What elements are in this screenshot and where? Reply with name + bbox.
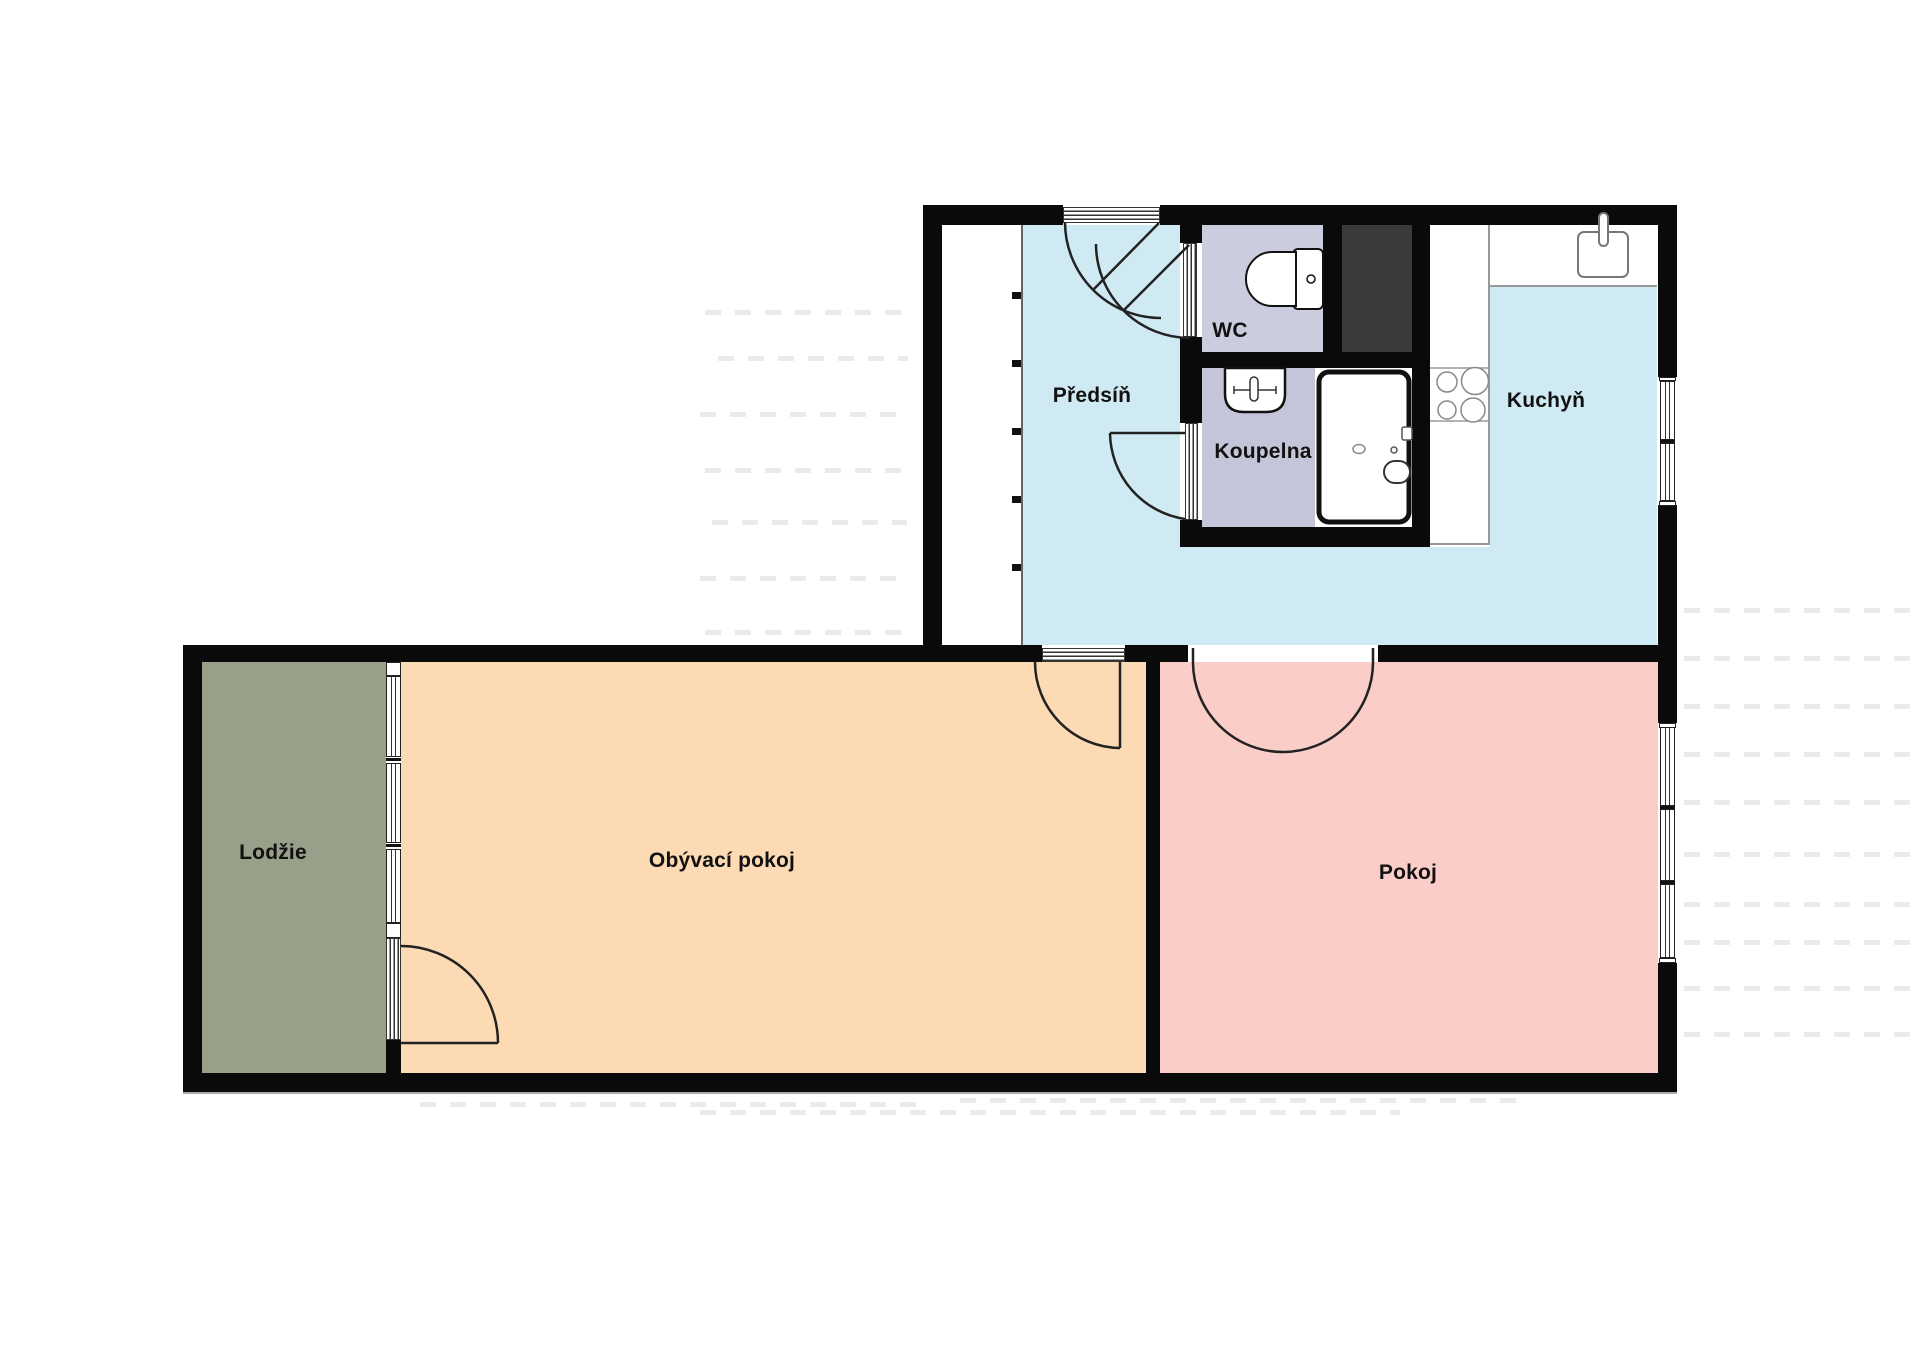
closet-divider-tick (1012, 496, 1021, 503)
kuchyn-window-segment (1660, 443, 1675, 501)
wall-divider-living-pokoj (1146, 662, 1160, 1073)
bathtub-area-floor (1315, 368, 1412, 527)
pokoj-window-segment (1660, 809, 1675, 881)
room-label-predsin: Předsíň (1053, 384, 1131, 408)
lodzie-window-segment (386, 849, 401, 923)
kitchen-counter-top (1490, 225, 1657, 287)
entrance-door-frame (1063, 207, 1160, 223)
window-mullions (1665, 728, 1670, 805)
wall-wc-bottom (1180, 352, 1430, 368)
margin-noise (1684, 800, 1910, 805)
window-cap (386, 662, 401, 676)
room-label-pokoj: Pokoj (1379, 861, 1437, 885)
window-joint (386, 844, 401, 847)
wall-wc-right (1323, 225, 1342, 352)
pokoj-window-segment (1660, 884, 1675, 958)
margin-noise (420, 1102, 920, 1107)
margin-noise (1684, 902, 1910, 907)
closet-divider-tick (1012, 360, 1021, 367)
utility-shaft (1342, 225, 1412, 352)
window-cap (386, 923, 401, 938)
closet-divider-tick (1012, 428, 1021, 435)
room-lodzie-floor (202, 662, 386, 1073)
wall-bottom (183, 1073, 1677, 1092)
window-cap (1659, 501, 1676, 506)
room-label-kuchyn: Kuchyň (1507, 389, 1585, 413)
pokoj-window-segment (1660, 727, 1675, 806)
margin-noise (700, 1110, 1400, 1115)
window-mullions (391, 677, 396, 756)
wall-top-left (923, 205, 1063, 225)
room-label-koupelna: Koupelna (1214, 440, 1311, 464)
margin-noise (1684, 752, 1910, 757)
lodzie-window-segment (386, 763, 401, 843)
wall-mid-band-b (1125, 645, 1188, 662)
wall-right-b (1658, 505, 1677, 723)
wall-wc-left-a (1180, 225, 1202, 243)
wall-bath-right (1412, 225, 1430, 547)
room-label-wc: WC (1212, 319, 1247, 343)
margin-noise (1684, 608, 1910, 613)
closet-divider-tick (1012, 564, 1021, 571)
margin-noise (960, 1098, 1520, 1103)
wall-bath-bottom (1180, 527, 1430, 547)
margin-noise (705, 468, 905, 473)
margin-noise (700, 412, 905, 417)
wall-lodzie-door-stub (386, 1040, 401, 1073)
window-mullions (1665, 810, 1670, 880)
wall-top-right (1160, 205, 1677, 225)
closet-divider-tick (1012, 292, 1021, 299)
window-cap (1659, 958, 1676, 963)
lodzie-door-frame (386, 938, 401, 1040)
margin-noise (712, 520, 907, 525)
margin-noise (1684, 704, 1910, 709)
room-label-lodzie: Lodžie (239, 841, 307, 865)
wc-door-frame (1183, 243, 1197, 337)
wall-upper-left (923, 205, 942, 662)
margin-noise (1684, 656, 1910, 661)
margin-noise (1684, 852, 1910, 857)
window-mullions (1665, 885, 1670, 957)
window-mullions (391, 850, 396, 922)
margin-noise (1684, 986, 1910, 991)
wall-mid-band-a (183, 645, 1042, 662)
wall-mid-band-c (1378, 645, 1677, 662)
margin-noise (700, 576, 905, 581)
kitchen-counter-vertical (1430, 225, 1490, 545)
wall-wc-left-b (1180, 337, 1202, 423)
wall-right-a (1658, 205, 1677, 377)
built-in-closet (942, 225, 1023, 645)
window-mullions (391, 764, 396, 842)
koupelna-door-frame (1185, 423, 1198, 520)
margin-noise (1684, 1032, 1910, 1037)
margin-noise (1684, 940, 1910, 945)
kuchyn-window-segment (1660, 381, 1675, 440)
window-mullions (1665, 382, 1670, 439)
window-mullions (1665, 444, 1670, 500)
margin-noise (705, 310, 905, 315)
wall-lower-left (183, 645, 202, 1092)
room-kuchyn-floor (1490, 287, 1657, 645)
wall-right-c (1658, 963, 1677, 1073)
margin-noise (705, 630, 905, 635)
living-door-frame (1042, 648, 1125, 662)
floor-plan-canvas: Předsíň WC Koupelna Kuchyň Lodžie Obývac… (0, 0, 1920, 1357)
lodzie-window-segment (386, 676, 401, 757)
margin-noise (718, 356, 908, 361)
window-joint (386, 758, 401, 761)
room-label-obyvaci: Obývací pokoj (649, 849, 795, 873)
wall-bottom-shadow (183, 1092, 1677, 1094)
